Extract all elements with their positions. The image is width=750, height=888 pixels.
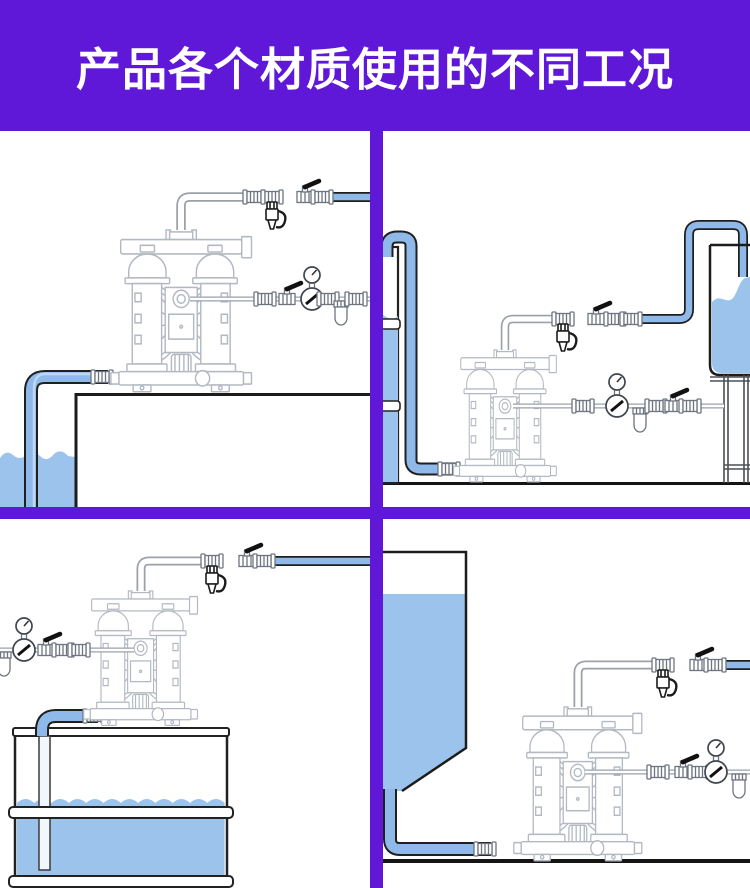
- diagram-grid: [0, 131, 750, 888]
- page-title: 产品各个材质使用的不同工况: [76, 33, 674, 98]
- pipe-coupler: [253, 554, 275, 568]
- pipe-coupler: [474, 842, 496, 856]
- diaphragm-pump: [454, 350, 557, 482]
- spray-gun: [266, 202, 285, 229]
- pipe-coupler: [345, 292, 367, 306]
- air-filter: [0, 652, 11, 676]
- pressure-regulator-gauge: [705, 740, 727, 783]
- discharge-pipe: [505, 225, 743, 350]
- spray-gun: [206, 566, 225, 593]
- panel-bottom-left: [0, 519, 370, 888]
- diaphragm-pump: [111, 230, 252, 392]
- pressure-regulator-gauge: [13, 618, 35, 661]
- spray-gun: [657, 670, 676, 697]
- pipe-coupler: [647, 765, 669, 779]
- suction-pipe: [390, 789, 491, 849]
- pipe-coupler: [620, 312, 642, 326]
- pipe-coupler: [645, 399, 667, 413]
- pipe-coupler: [679, 399, 701, 413]
- header-banner: 产品各个材质使用的不同工况: [0, 0, 750, 131]
- air-filter: [732, 774, 746, 798]
- diaphragm-pump: [514, 707, 642, 861]
- panel-bottom-right: [383, 519, 750, 888]
- tank-stand: [710, 375, 750, 483]
- pipe-coupler: [704, 658, 726, 672]
- storage-tank: [76, 395, 370, 508]
- hopper: [383, 552, 466, 791]
- pipe-coupler: [254, 292, 276, 306]
- pipe-coupler: [311, 190, 333, 204]
- spray-gun: [557, 324, 576, 351]
- panel-top-left: [0, 131, 370, 507]
- pressure-regulator-gauge: [606, 374, 628, 417]
- drop-tube: [39, 736, 50, 870]
- panel-top-right: [383, 131, 750, 507]
- diaphragm-pump: [84, 591, 198, 725]
- product-usage-page: 产品各个材质使用的不同工况: [0, 0, 750, 888]
- pipe-coupler: [91, 370, 113, 384]
- pipe-coupler: [68, 643, 90, 657]
- grid-divider-horizontal: [0, 507, 750, 519]
- liquid-drum: [9, 728, 233, 888]
- pipe-coupler: [572, 399, 594, 413]
- supply-drum: [383, 247, 400, 483]
